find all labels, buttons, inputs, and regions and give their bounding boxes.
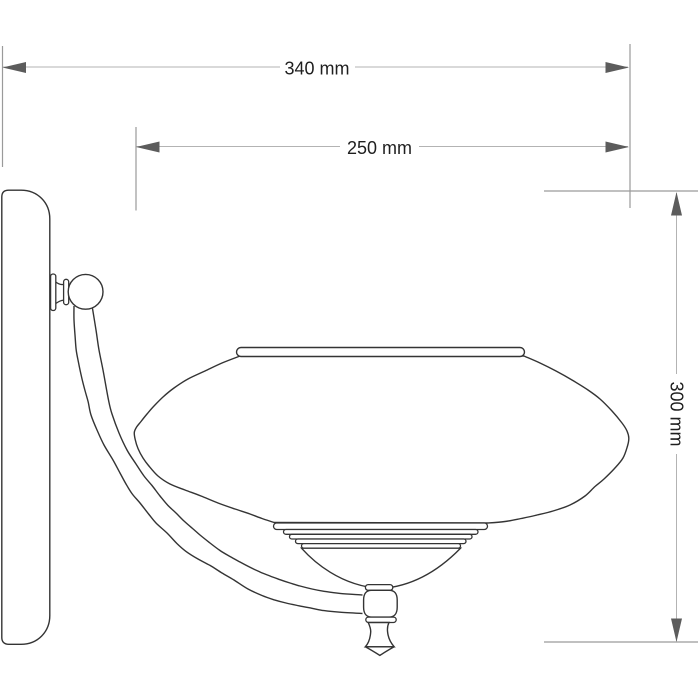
svg-text:300 mm: 300 mm: [667, 381, 687, 446]
svg-text:340 mm: 340 mm: [284, 59, 349, 79]
svg-text:250 mm: 250 mm: [347, 138, 412, 158]
